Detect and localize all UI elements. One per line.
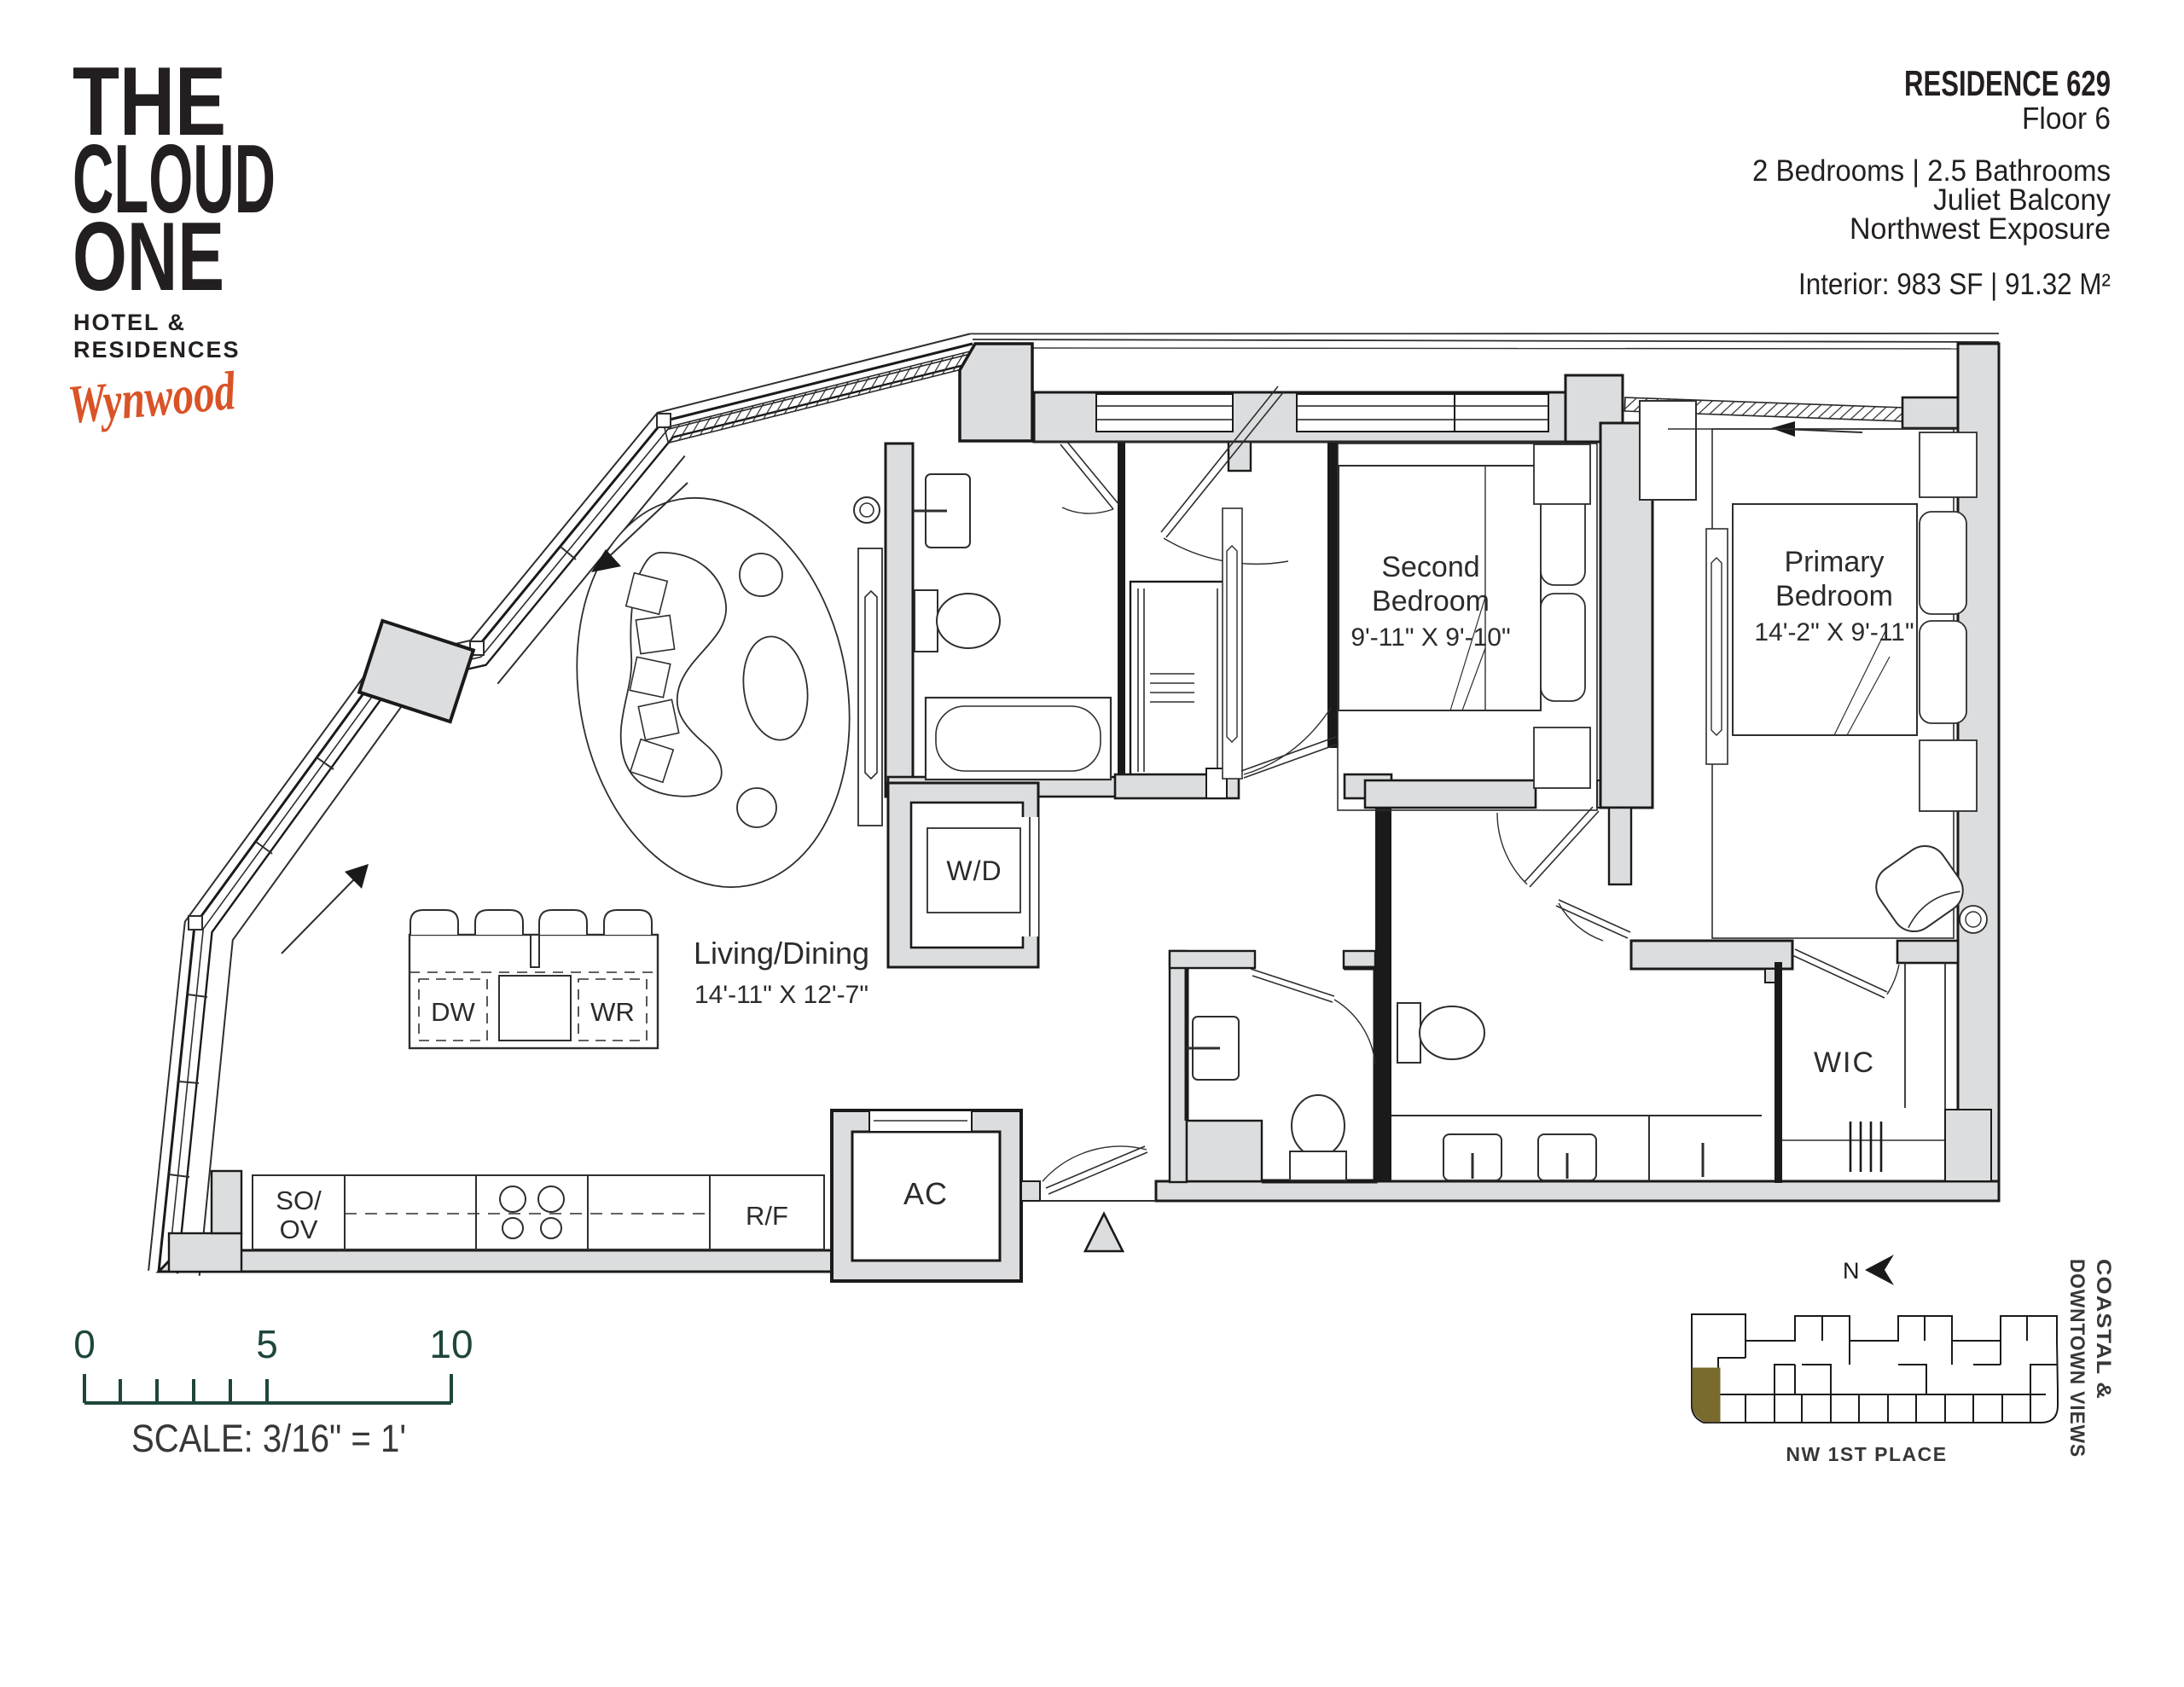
svg-text:10: 10 bbox=[429, 1322, 473, 1366]
svg-text:Primary: Primary bbox=[1784, 546, 1884, 578]
svg-text:9'-11" X 9'-10": 9'-11" X 9'-10" bbox=[1350, 623, 1510, 652]
svg-text:RESIDENCE 629: RESIDENCE 629 bbox=[1904, 63, 2111, 103]
svg-text:0: 0 bbox=[73, 1322, 96, 1366]
svg-text:W/D: W/D bbox=[946, 855, 1002, 886]
svg-text:SO/: SO/ bbox=[276, 1186, 322, 1215]
svg-text:Bedroom: Bedroom bbox=[1775, 580, 1893, 612]
svg-text:COASTAL &: COASTAL & bbox=[2092, 1259, 2115, 1400]
svg-text:Floor 6: Floor 6 bbox=[2022, 101, 2111, 136]
svg-text:Second: Second bbox=[1381, 551, 1479, 583]
svg-text:HOTEL &: HOTEL & bbox=[73, 310, 186, 335]
svg-text:Living/Dining: Living/Dining bbox=[694, 936, 869, 971]
svg-text:Northwest Exposure: Northwest Exposure bbox=[1850, 212, 2111, 246]
svg-text:R/F: R/F bbox=[746, 1201, 788, 1231]
svg-text:14'-11" X 12'-7": 14'-11" X 12'-7" bbox=[694, 981, 868, 1009]
svg-text:Bedroom: Bedroom bbox=[1372, 585, 1490, 617]
svg-text:N: N bbox=[1843, 1258, 1860, 1284]
svg-text:ONE: ONE bbox=[73, 203, 224, 311]
svg-text:DW: DW bbox=[431, 997, 475, 1027]
svg-text:RESIDENCES: RESIDENCES bbox=[73, 337, 241, 362]
svg-text:AC: AC bbox=[903, 1176, 948, 1211]
svg-text:WIC: WIC bbox=[1814, 1046, 1875, 1079]
svg-text:5: 5 bbox=[256, 1322, 278, 1366]
svg-text:14'-2" X 9'-11": 14'-2" X 9'-11" bbox=[1754, 618, 1914, 646]
svg-text:Interior: 983 SF | 91.32 M²: Interior: 983 SF | 91.32 M² bbox=[1798, 268, 2111, 301]
svg-text:NW 1ST PLACE: NW 1ST PLACE bbox=[1786, 1443, 1947, 1465]
svg-text:SCALE: 3/16" = 1': SCALE: 3/16" = 1' bbox=[131, 1417, 406, 1460]
svg-text:Wynwood: Wynwood bbox=[66, 360, 238, 435]
svg-text:DOWNTOWN VIEWS: DOWNTOWN VIEWS bbox=[2065, 1259, 2088, 1458]
svg-text:WR: WR bbox=[590, 997, 635, 1027]
svg-text:OV: OV bbox=[280, 1215, 318, 1244]
